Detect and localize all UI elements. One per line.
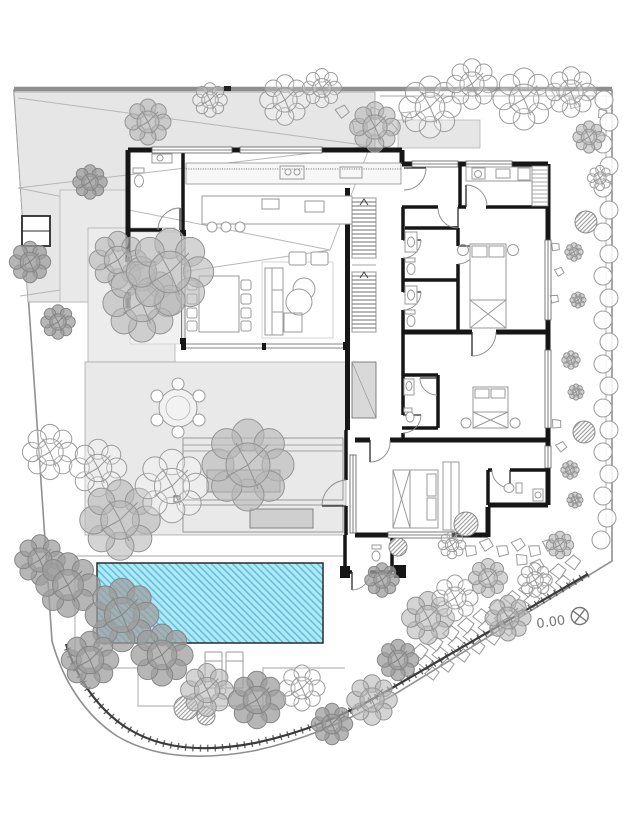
- toilet-bowl: [135, 175, 144, 187]
- gate-post-marker: [224, 86, 231, 91]
- bedside-table: [510, 418, 520, 428]
- entry-gate: [22, 216, 50, 246]
- side-table: [284, 313, 302, 332]
- elevation-marker: 0.00: [535, 606, 590, 632]
- kitchen: [186, 163, 401, 184]
- hedge-east: [592, 91, 618, 549]
- kitchen-island: [202, 196, 352, 232]
- bed: [393, 470, 438, 528]
- utility-room: [466, 167, 532, 181]
- stair-direction-arrow: [360, 199, 368, 278]
- sofa-set: [262, 252, 333, 338]
- bathroom-2: [405, 286, 417, 327]
- sofa: [265, 268, 283, 335]
- coffee-table: [286, 289, 312, 315]
- stool: [235, 222, 245, 232]
- stool: [207, 222, 217, 232]
- armchair: [289, 252, 306, 265]
- stepping-stones-east: [549, 242, 568, 453]
- armchair: [311, 252, 328, 265]
- bedroom-2: [461, 387, 520, 428]
- ensuite-bathroom: [504, 483, 543, 501]
- elevation-label: 0.00: [536, 613, 567, 632]
- pool-bathroom: [372, 545, 381, 561]
- site-plan: 0.00: [0, 0, 634, 818]
- glass-wall-south: [181, 342, 348, 350]
- louver-vent: [532, 166, 548, 206]
- toilet-tank: [133, 168, 144, 173]
- benchmark-icon: [570, 606, 589, 625]
- bedroom-1: [458, 244, 519, 328]
- bedside-table: [461, 418, 471, 428]
- staircase: [352, 198, 376, 418]
- stool: [221, 222, 231, 232]
- bedside-table: [508, 245, 519, 256]
- site-plan-drawing: 0.00: [0, 0, 634, 818]
- bedroom-3: [393, 462, 459, 530]
